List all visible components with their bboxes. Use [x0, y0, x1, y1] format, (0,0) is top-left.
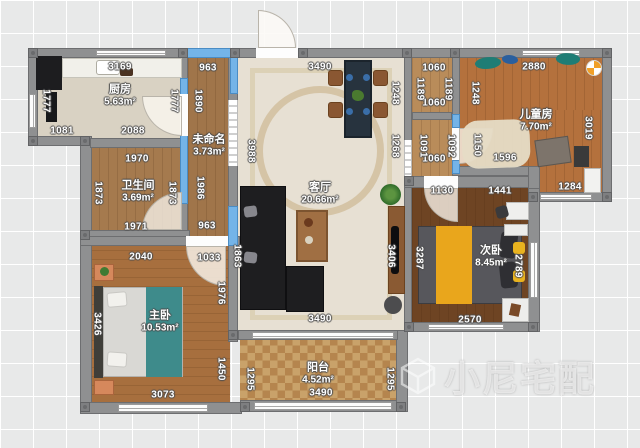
- coffee-table-item: [305, 236, 313, 244]
- wall-joint: [404, 176, 414, 186]
- room-label-master: 主卧10.53m²: [141, 310, 178, 335]
- beach-ball: [586, 60, 602, 76]
- room-label-living: 客厅20.66m²: [301, 182, 338, 207]
- wall-joint: [528, 192, 538, 202]
- dimension-label: 1450: [216, 357, 227, 380]
- dimension-label: 1976: [216, 281, 227, 304]
- dimension-label: 2570: [458, 315, 481, 326]
- second-dresser[interactable]: [506, 202, 529, 220]
- dimension-label: 3426: [92, 312, 103, 335]
- window-second-right[interactable]: [530, 242, 538, 298]
- dimension-label: 963: [198, 221, 216, 232]
- dimension-label: 1971: [124, 222, 147, 233]
- dimension-label: 1092: [446, 134, 457, 157]
- dimension-label: 3019: [583, 116, 594, 139]
- dimension-label: 3490: [308, 314, 331, 325]
- dimension-label: 1091: [418, 134, 429, 157]
- entry-door-arc[interactable]: [258, 10, 296, 48]
- dimension-label: 1189: [443, 78, 454, 101]
- dining-plate: [363, 108, 370, 115]
- wall-selected-corridor-right[interactable]: [230, 56, 238, 94]
- wall-joint: [298, 48, 308, 58]
- wall-joint: [404, 322, 414, 332]
- dimension-label: 3988: [246, 139, 257, 162]
- wall-joint: [228, 330, 238, 340]
- nightstand-plant: [100, 267, 109, 276]
- wall-joint: [80, 136, 90, 146]
- children-shelf[interactable]: [574, 146, 589, 167]
- dining-chair[interactable]: [328, 102, 343, 118]
- dimension-label: 2880: [522, 62, 545, 73]
- children-desk[interactable]: [534, 136, 571, 167]
- dimension-label: 1777: [169, 89, 180, 112]
- dimension-label: 1777: [41, 89, 52, 112]
- dining-chair[interactable]: [373, 70, 388, 86]
- dimension-label: 3490: [309, 388, 332, 399]
- opening-corridor-living[interactable]: [228, 100, 238, 166]
- children-wardrobe[interactable]: [584, 168, 601, 193]
- wall-children-right[interactable]: [602, 48, 612, 202]
- wall-joint: [240, 402, 250, 412]
- coffee-table[interactable]: [296, 210, 328, 262]
- wall-joint: [396, 402, 406, 412]
- window-master-bottom[interactable]: [118, 404, 208, 412]
- wall-joint: [80, 230, 90, 240]
- dimension-label: 1890: [193, 89, 204, 112]
- dimension-label: 3073: [151, 390, 174, 401]
- watermark-text: 小尼宅配: [444, 350, 596, 402]
- dimension-label: 1873: [93, 181, 104, 204]
- dining-plate: [346, 74, 353, 81]
- room-label-kitchen: 厨房5.63m²: [104, 84, 136, 109]
- room-label-bathroom: 卫生间3.69m²: [122, 180, 155, 205]
- dining-centerpiece-plant: [352, 90, 364, 101]
- dimension-label: 1986: [195, 176, 206, 199]
- wall-bathroom-top[interactable]: [90, 138, 182, 148]
- wall-joint: [178, 48, 188, 58]
- wall-selected-children-door-top[interactable]: [452, 114, 460, 128]
- master-nightstand[interactable]: [94, 380, 114, 395]
- sofa-cushion: [243, 251, 257, 263]
- wall-left-main[interactable]: [80, 136, 92, 414]
- floorplan-canvas: 厨房5.63m² 未命名3.73m² 卫生间3.69m² 客厅20.66m² 儿…: [0, 0, 640, 448]
- dimension-label: 2040: [129, 252, 152, 263]
- wall-joint: [80, 402, 90, 412]
- second-bed-blanket: [436, 226, 472, 304]
- room-label-second: 次卧8.45m²: [475, 245, 507, 270]
- sofa-cushion: [243, 205, 257, 218]
- dimension-label: 1873: [167, 181, 178, 204]
- dimension-label: 3287: [414, 246, 425, 269]
- sofa-chaise[interactable]: [286, 266, 324, 312]
- room-label-corridor: 未命名3.73m²: [193, 134, 226, 159]
- dimension-label: 1150: [472, 134, 483, 157]
- dimension-label: 1596: [493, 153, 516, 164]
- wall-joint: [402, 48, 412, 58]
- dimension-label: 1248: [470, 81, 481, 104]
- window-balcony-sliding[interactable]: [252, 332, 394, 339]
- wall-living-right[interactable]: [404, 56, 412, 332]
- dimension-label: 1295: [245, 367, 256, 390]
- dining-chair[interactable]: [373, 102, 388, 118]
- dimension-label: 2789: [513, 254, 524, 277]
- dimension-label: 1970: [125, 154, 148, 165]
- dimension-label: 1081: [50, 126, 73, 137]
- cube-logo-icon: [398, 356, 438, 396]
- opening-living-hallway[interactable]: [404, 140, 412, 178]
- room-label-children: 儿童房7.70m²: [520, 109, 553, 134]
- second-nightstand[interactable]: [504, 224, 528, 236]
- window-kitchen-left[interactable]: [29, 94, 36, 128]
- dimension-label: 1295: [385, 367, 396, 390]
- dimension-label: 1863: [232, 244, 243, 267]
- opening-entry: [256, 48, 298, 58]
- opening-master-door: [186, 236, 228, 246]
- side-round-table[interactable]: [384, 296, 402, 314]
- kitchen-stove[interactable]: [36, 56, 62, 90]
- dimension-label: 1268: [390, 134, 401, 157]
- window-balcony-bottom[interactable]: [254, 402, 392, 410]
- dimension-label: 2088: [121, 126, 144, 137]
- wall-closet-bottom[interactable]: [412, 112, 452, 120]
- dimension-label: 1248: [390, 81, 401, 104]
- master-bed-pillow: [107, 351, 128, 367]
- wall-joint: [28, 136, 38, 146]
- master-bed-pillow: [106, 291, 127, 308]
- second-stool[interactable]: [513, 242, 525, 254]
- sofa-main[interactable]: [240, 186, 286, 310]
- dimension-label: 1189: [415, 78, 426, 101]
- wall-joint: [602, 192, 612, 202]
- living-plant[interactable]: [380, 184, 401, 205]
- coffee-table-item: [304, 218, 313, 227]
- dimension-label: 3490: [308, 62, 331, 73]
- wall-living-left[interactable]: [228, 56, 238, 342]
- dimension-label: 3169: [108, 62, 131, 73]
- wall-joint: [28, 48, 38, 58]
- wall-joint: [528, 322, 538, 332]
- window-kitchen-top[interactable]: [96, 50, 166, 56]
- dimension-label: 1441: [488, 186, 511, 197]
- dimension-label: 1060: [422, 63, 445, 74]
- wall-joint: [450, 48, 460, 58]
- dining-plate: [363, 74, 370, 81]
- wall-joint: [602, 48, 612, 58]
- dimension-label: 3406: [386, 244, 397, 267]
- window-children-bottom[interactable]: [540, 194, 592, 200]
- dining-plate: [346, 108, 353, 115]
- wall-selected-living-left[interactable]: [228, 206, 238, 246]
- wall-joint: [230, 48, 240, 58]
- watermark: 小尼宅配: [398, 350, 596, 402]
- dimension-label: 963: [199, 63, 217, 74]
- room-label-balcony: 阳台4.52m²: [302, 362, 334, 387]
- dimension-label: 1284: [558, 182, 581, 193]
- dimension-label: 1033: [197, 253, 220, 264]
- dimension-label: 1130: [431, 186, 454, 197]
- fish-decal: [502, 55, 518, 64]
